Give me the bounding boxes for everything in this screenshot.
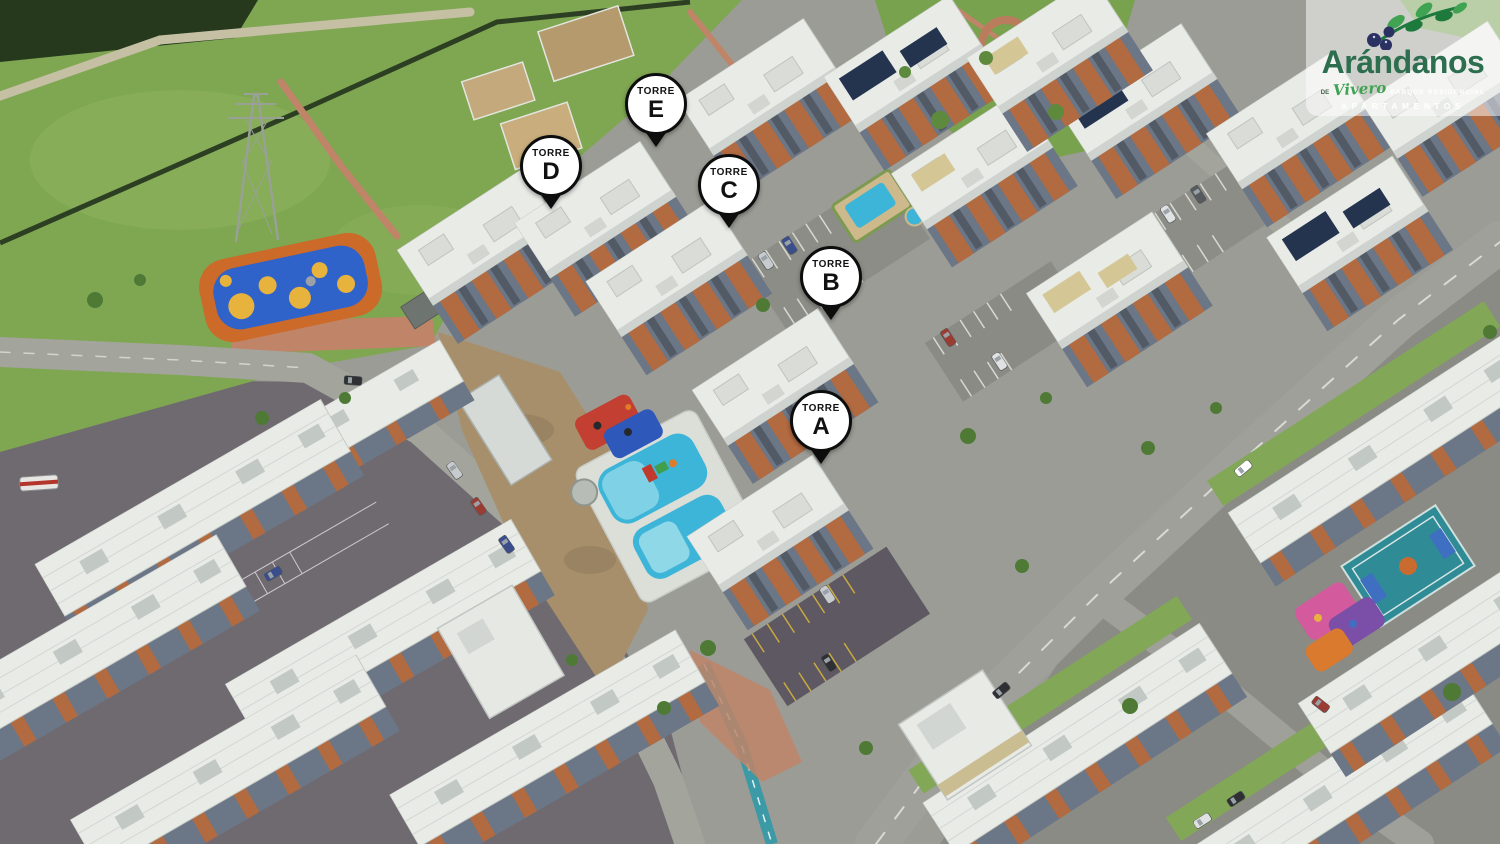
brand-subtitle: APARTAMENTOS — [1341, 101, 1465, 111]
brand-prefix: DE — [1321, 90, 1329, 96]
blueberry-branch-icon — [1362, 2, 1474, 50]
tower-pin-d[interactable]: TORRED — [520, 135, 582, 209]
pin-label: TORRE — [802, 404, 840, 414]
tower-pin-c[interactable]: TORREC — [698, 154, 760, 228]
aerial-site-view: TORREATORREBTORRECTORREDTORREE Arándanos… — [0, 0, 1500, 844]
brand-script-name: Vivero — [1333, 79, 1387, 100]
tower-pin-b[interactable]: TORREB — [800, 246, 862, 320]
pin-letter: A — [812, 415, 829, 439]
pin-bubble: TORREE — [625, 73, 687, 135]
tower-pin-a[interactable]: TORREA — [790, 390, 852, 464]
brand-tagline: PARQUE RESIDENCIAL — [1390, 89, 1485, 96]
aerial-photo — [0, 0, 1500, 844]
pin-letter: D — [542, 160, 559, 184]
pin-label: TORRE — [637, 87, 675, 97]
pin-bubble: TORREB — [800, 246, 862, 308]
pin-letter: C — [720, 179, 737, 203]
brand-logo-panel: Arándanos DE Vivero PARQUE RESIDENCIAL A… — [1306, 0, 1500, 116]
brand-name: Arándanos — [1322, 46, 1485, 78]
pin-label: TORRE — [532, 149, 570, 159]
tower-pin-e[interactable]: TORREE — [625, 73, 687, 147]
pin-bubble: TORREA — [790, 390, 852, 452]
pin-bubble: TORRED — [520, 135, 582, 197]
pin-letter: E — [648, 98, 664, 122]
bus — [20, 475, 59, 492]
pin-bubble: TORREC — [698, 154, 760, 216]
pin-label: TORRE — [710, 168, 748, 178]
pin-label: TORRE — [812, 260, 850, 270]
pin-letter: B — [822, 271, 839, 295]
